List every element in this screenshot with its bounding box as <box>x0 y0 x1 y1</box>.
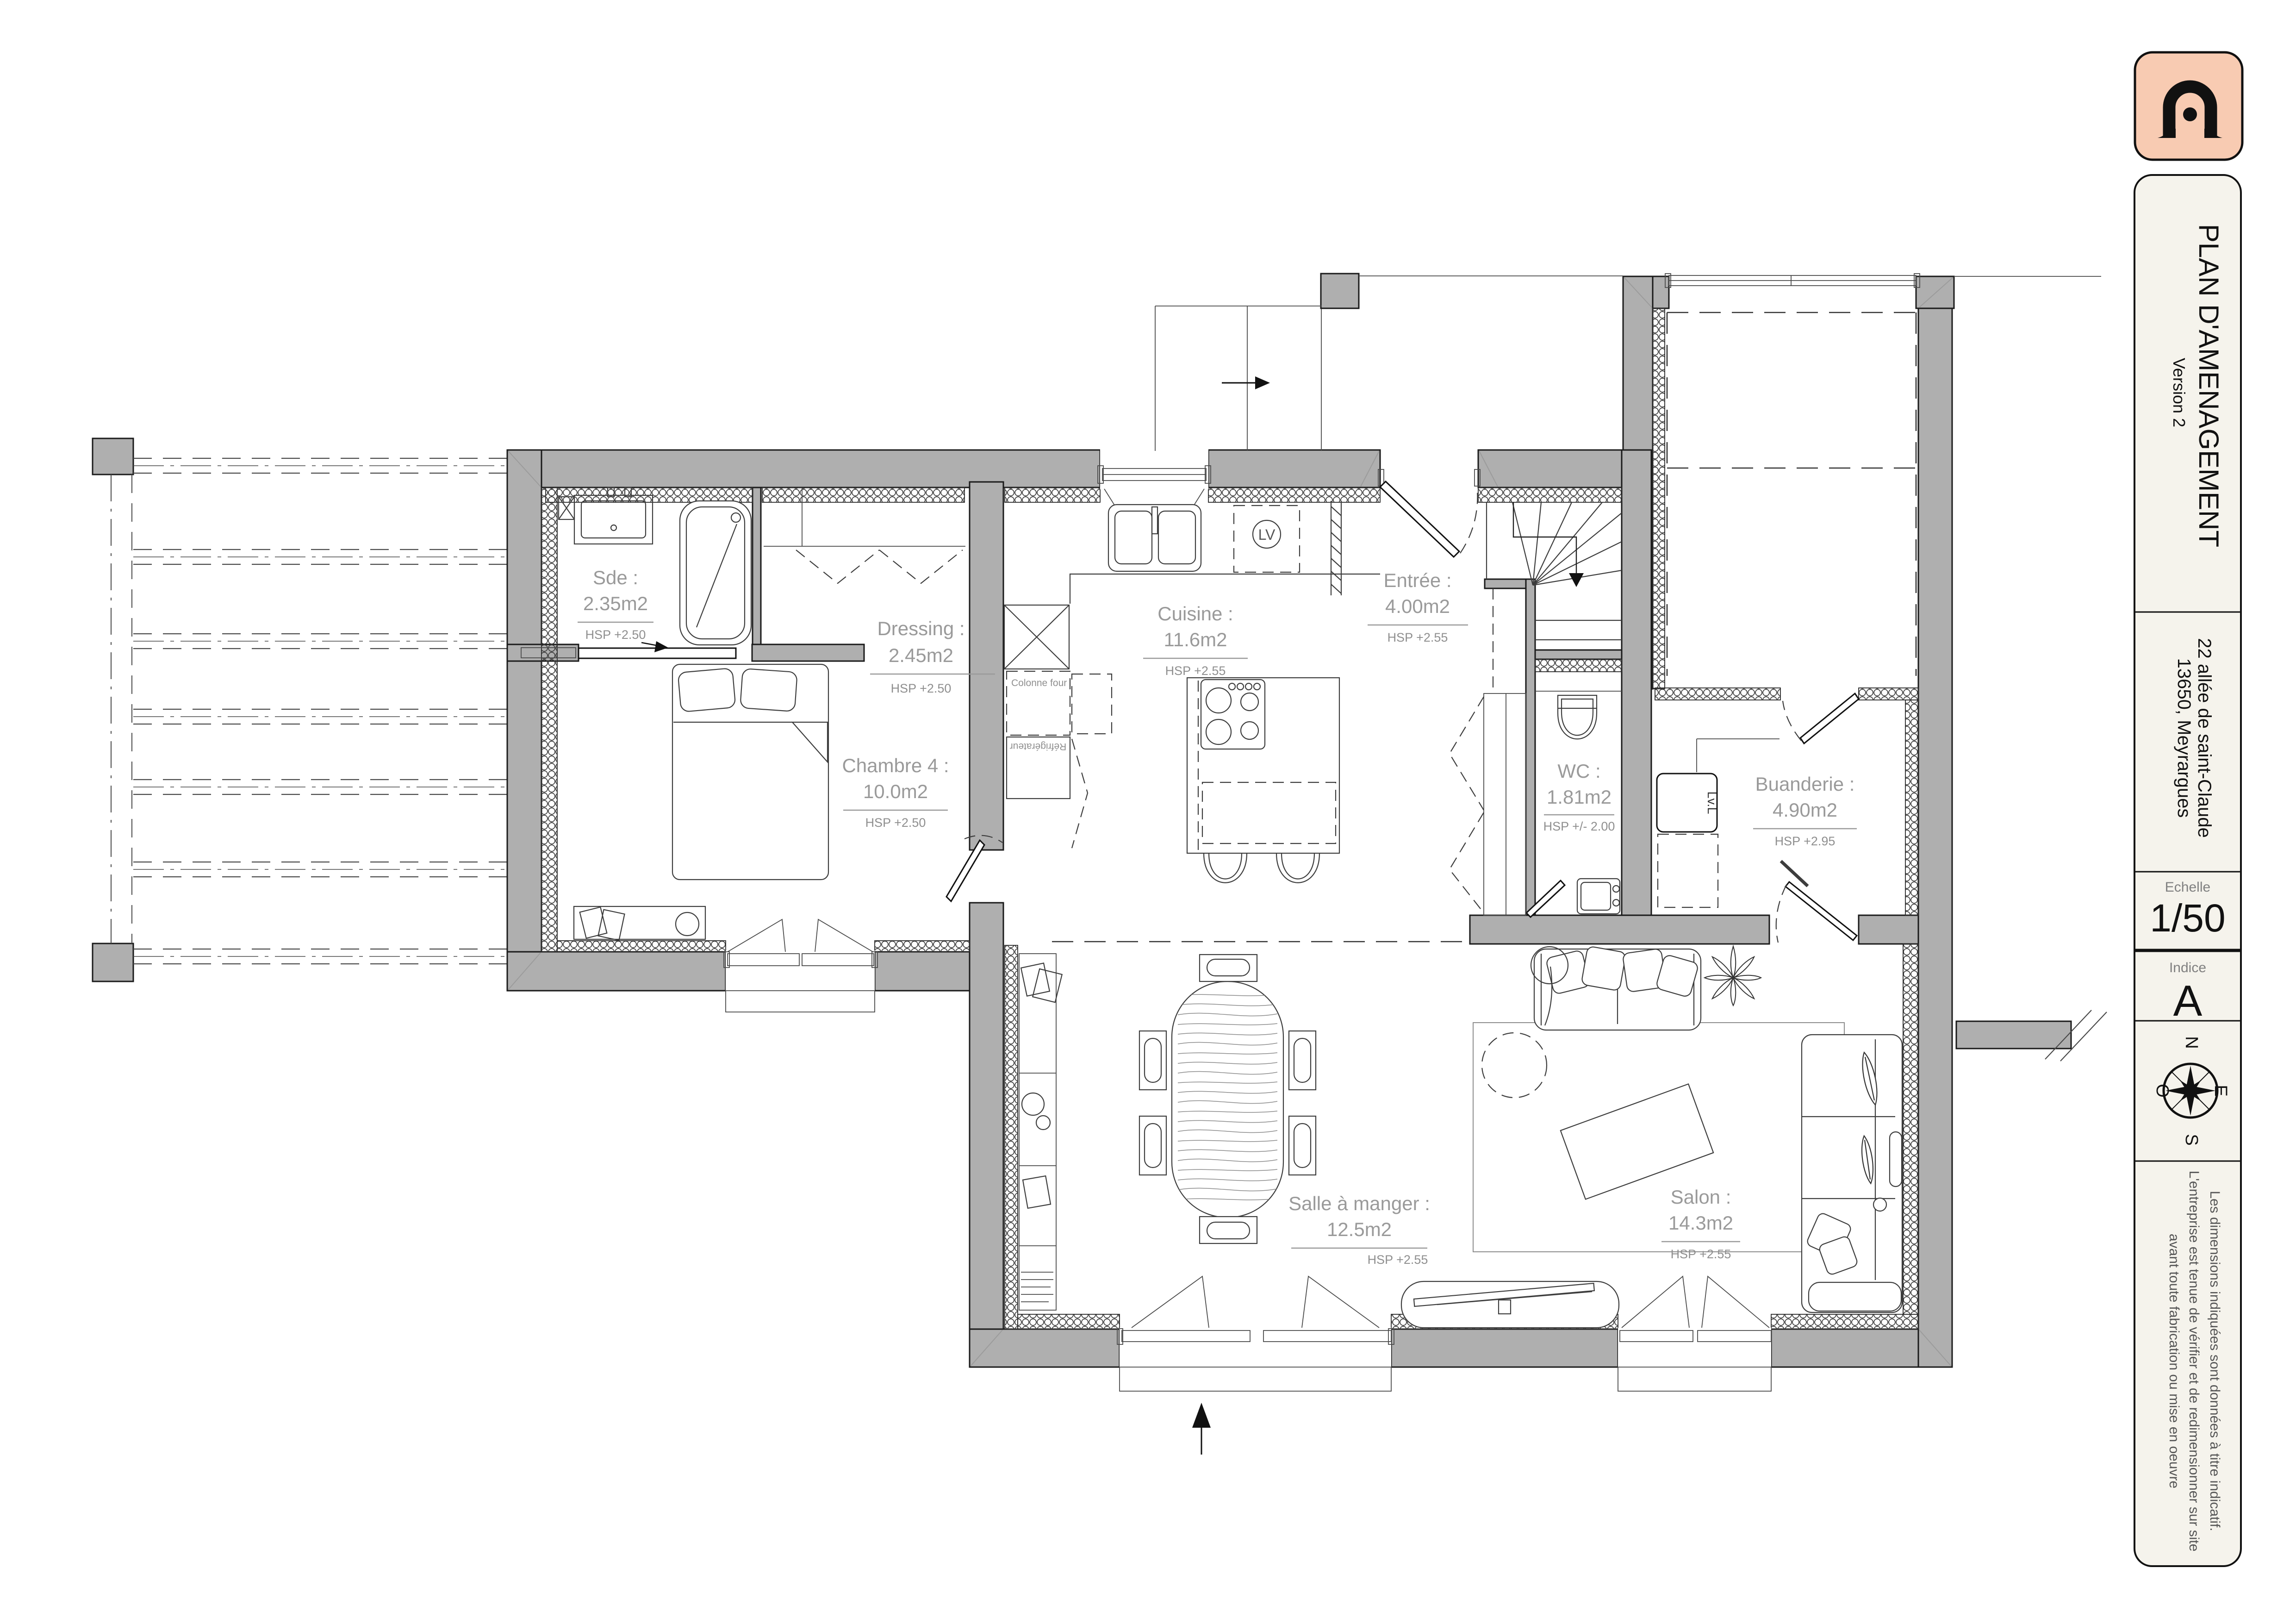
svg-text:4.00m2: 4.00m2 <box>1385 595 1450 617</box>
svg-text:HSP +2.55: HSP +2.55 <box>1671 1247 1731 1261</box>
svg-text:1/50: 1/50 <box>2150 896 2226 940</box>
svg-text:HSP +2.50: HSP +2.50 <box>865 816 926 830</box>
svg-text:Sde :: Sde : <box>593 567 638 588</box>
svg-text:WC :: WC : <box>1557 760 1600 782</box>
svg-text:Salon :: Salon : <box>1671 1186 1731 1208</box>
svg-text:Réfrigérateur: Réfrigérateur <box>1010 741 1067 752</box>
svg-text:2.45m2: 2.45m2 <box>889 644 953 666</box>
svg-text:PLAN D'AMENAGEMENT: PLAN D'AMENAGEMENT <box>2193 224 2224 547</box>
svg-text:A: A <box>2173 976 2203 1025</box>
svg-text:12.5m2: 12.5m2 <box>1327 1218 1392 1240</box>
svg-text:22 allée de saint-Claude: 22 allée de saint-Claude <box>2194 638 2215 837</box>
svg-text:Indice: Indice <box>2169 960 2206 975</box>
svg-text:HSP +2.55: HSP +2.55 <box>1388 631 1448 644</box>
svg-text:HSP +2.55: HSP +2.55 <box>1165 664 1226 678</box>
svg-text:L'entreprise est tenue de véri: L'entreprise est tenue de vérifier et de… <box>2186 1171 2202 1552</box>
svg-text:Dressing :: Dressing : <box>877 618 964 639</box>
svg-text:13650, Meyrargues: 13650, Meyrargues <box>2174 658 2194 818</box>
svg-text:Lv.L: Lv.L <box>1705 791 1719 814</box>
svg-text:avant toute fabrication ou mis: avant toute fabrication ou mise en oeuvr… <box>2166 1234 2182 1488</box>
svg-text:2.35m2: 2.35m2 <box>583 593 648 614</box>
svg-text:N: N <box>2182 1036 2201 1049</box>
svg-text:O: O <box>2153 1084 2172 1098</box>
svg-text:10.0m2: 10.0m2 <box>863 781 928 802</box>
svg-text:Les dimensions indiquées sont: Les dimensions indiquées sont données à … <box>2207 1191 2222 1531</box>
svg-text:HSP +2.50: HSP +2.50 <box>585 628 646 642</box>
svg-text:HSP +2.55: HSP +2.55 <box>1368 1253 1428 1267</box>
svg-text:Buanderie :: Buanderie : <box>1755 773 1855 795</box>
svg-text:1.81m2: 1.81m2 <box>1547 786 1612 808</box>
svg-text:Version 2: Version 2 <box>2170 358 2189 427</box>
svg-text:Salle à manger :: Salle à manger : <box>1288 1193 1430 1214</box>
svg-text:HSP +2.95: HSP +2.95 <box>1775 834 1836 848</box>
svg-text:HSP +/- 2.00: HSP +/- 2.00 <box>1543 819 1615 833</box>
svg-text:11.6m2: 11.6m2 <box>1164 629 1227 650</box>
svg-text:Echelle: Echelle <box>2165 880 2210 895</box>
svg-text:Cuisine :: Cuisine : <box>1157 603 1233 625</box>
svg-text:HSP +2.50: HSP +2.50 <box>891 681 952 695</box>
svg-text:Colonne four: Colonne four <box>1011 678 1067 688</box>
svg-text:4.90m2: 4.90m2 <box>1773 799 1837 821</box>
svg-text:S: S <box>2182 1134 2201 1145</box>
svg-text:Chambre 4 :: Chambre 4 : <box>842 755 949 776</box>
svg-text:E: E <box>2211 1085 2230 1096</box>
svg-text:14.3m2: 14.3m2 <box>1668 1212 1733 1234</box>
svg-text:LV: LV <box>1258 526 1276 543</box>
svg-text:Entrée :: Entrée : <box>1383 569 1451 591</box>
